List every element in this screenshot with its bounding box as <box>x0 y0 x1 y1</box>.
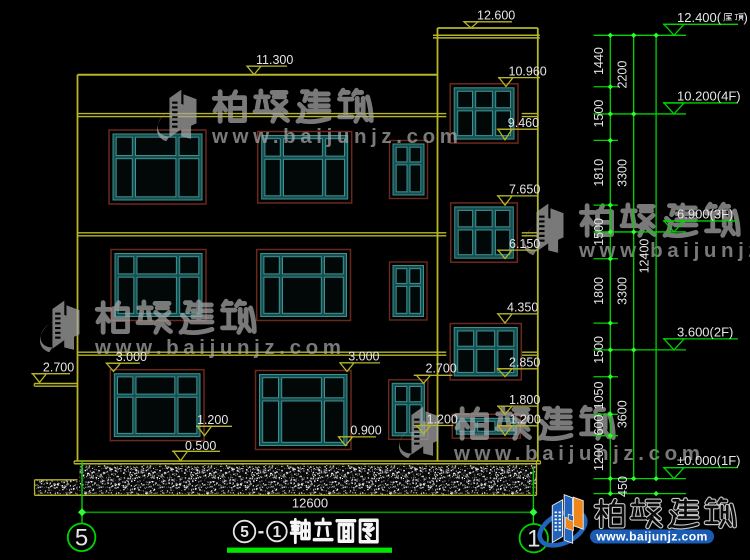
svg-text:1.800: 1.800 <box>509 393 540 407</box>
svg-text:12600: 12600 <box>292 496 328 511</box>
svg-text:3.000: 3.000 <box>348 350 379 364</box>
svg-text:www.baijunjz.com: www.baijunjz.com <box>453 442 705 465</box>
svg-text:www.baijunjz.com: www.baijunjz.com <box>595 529 708 543</box>
svg-text:3.600(2F): 3.600(2F) <box>677 324 733 339</box>
svg-text:3300: 3300 <box>616 159 630 187</box>
svg-text:1200: 1200 <box>592 443 606 471</box>
svg-text:1810: 1810 <box>592 159 606 187</box>
svg-text:2.700: 2.700 <box>43 360 74 374</box>
svg-text:6.150: 6.150 <box>509 237 540 251</box>
svg-text:2200: 2200 <box>616 61 630 89</box>
svg-text:5: 5 <box>75 525 88 552</box>
svg-text:1.200: 1.200 <box>427 412 458 426</box>
svg-text:1: 1 <box>273 524 282 541</box>
svg-text:1500: 1500 <box>592 218 606 246</box>
svg-text:0.900: 0.900 <box>350 424 381 438</box>
svg-text:10.960: 10.960 <box>509 64 547 78</box>
svg-text:6.900(3F): 6.900(3F) <box>677 206 733 221</box>
svg-text:3300: 3300 <box>616 277 630 305</box>
svg-text:1500: 1500 <box>592 100 606 128</box>
svg-text:-: - <box>258 521 265 543</box>
svg-text:0.500: 0.500 <box>185 439 216 453</box>
svg-text:): ) <box>744 10 748 25</box>
svg-text:1050: 1050 <box>592 382 606 410</box>
svg-text:1500: 1500 <box>592 336 606 364</box>
svg-text:1.200: 1.200 <box>197 413 228 427</box>
svg-text:12.400(: 12.400( <box>677 10 722 25</box>
svg-text:1440: 1440 <box>592 47 606 75</box>
svg-text:2.700: 2.700 <box>426 361 457 375</box>
svg-text:450: 450 <box>616 476 630 497</box>
svg-text:12400: 12400 <box>638 239 652 274</box>
svg-text:3.000: 3.000 <box>116 350 147 364</box>
svg-text:1800: 1800 <box>592 277 606 305</box>
svg-text:2.850: 2.850 <box>509 356 540 370</box>
svg-text:10.200(4F): 10.200(4F) <box>677 88 741 103</box>
svg-text:4.350: 4.350 <box>507 301 538 315</box>
svg-text:600: 600 <box>592 415 606 436</box>
svg-text:7.650: 7.650 <box>509 183 540 197</box>
svg-text:3600: 3600 <box>616 400 630 428</box>
svg-text:±0.000(1F): ±0.000(1F) <box>677 453 741 468</box>
svg-text:5: 5 <box>240 524 249 541</box>
svg-text:12.600: 12.600 <box>477 9 515 23</box>
svg-text:11.300: 11.300 <box>256 53 293 67</box>
svg-text:1.200: 1.200 <box>510 413 541 427</box>
svg-text:www.baijunjz.com: www.baijunjz.com <box>211 125 463 148</box>
svg-text:9.460: 9.460 <box>508 116 539 130</box>
